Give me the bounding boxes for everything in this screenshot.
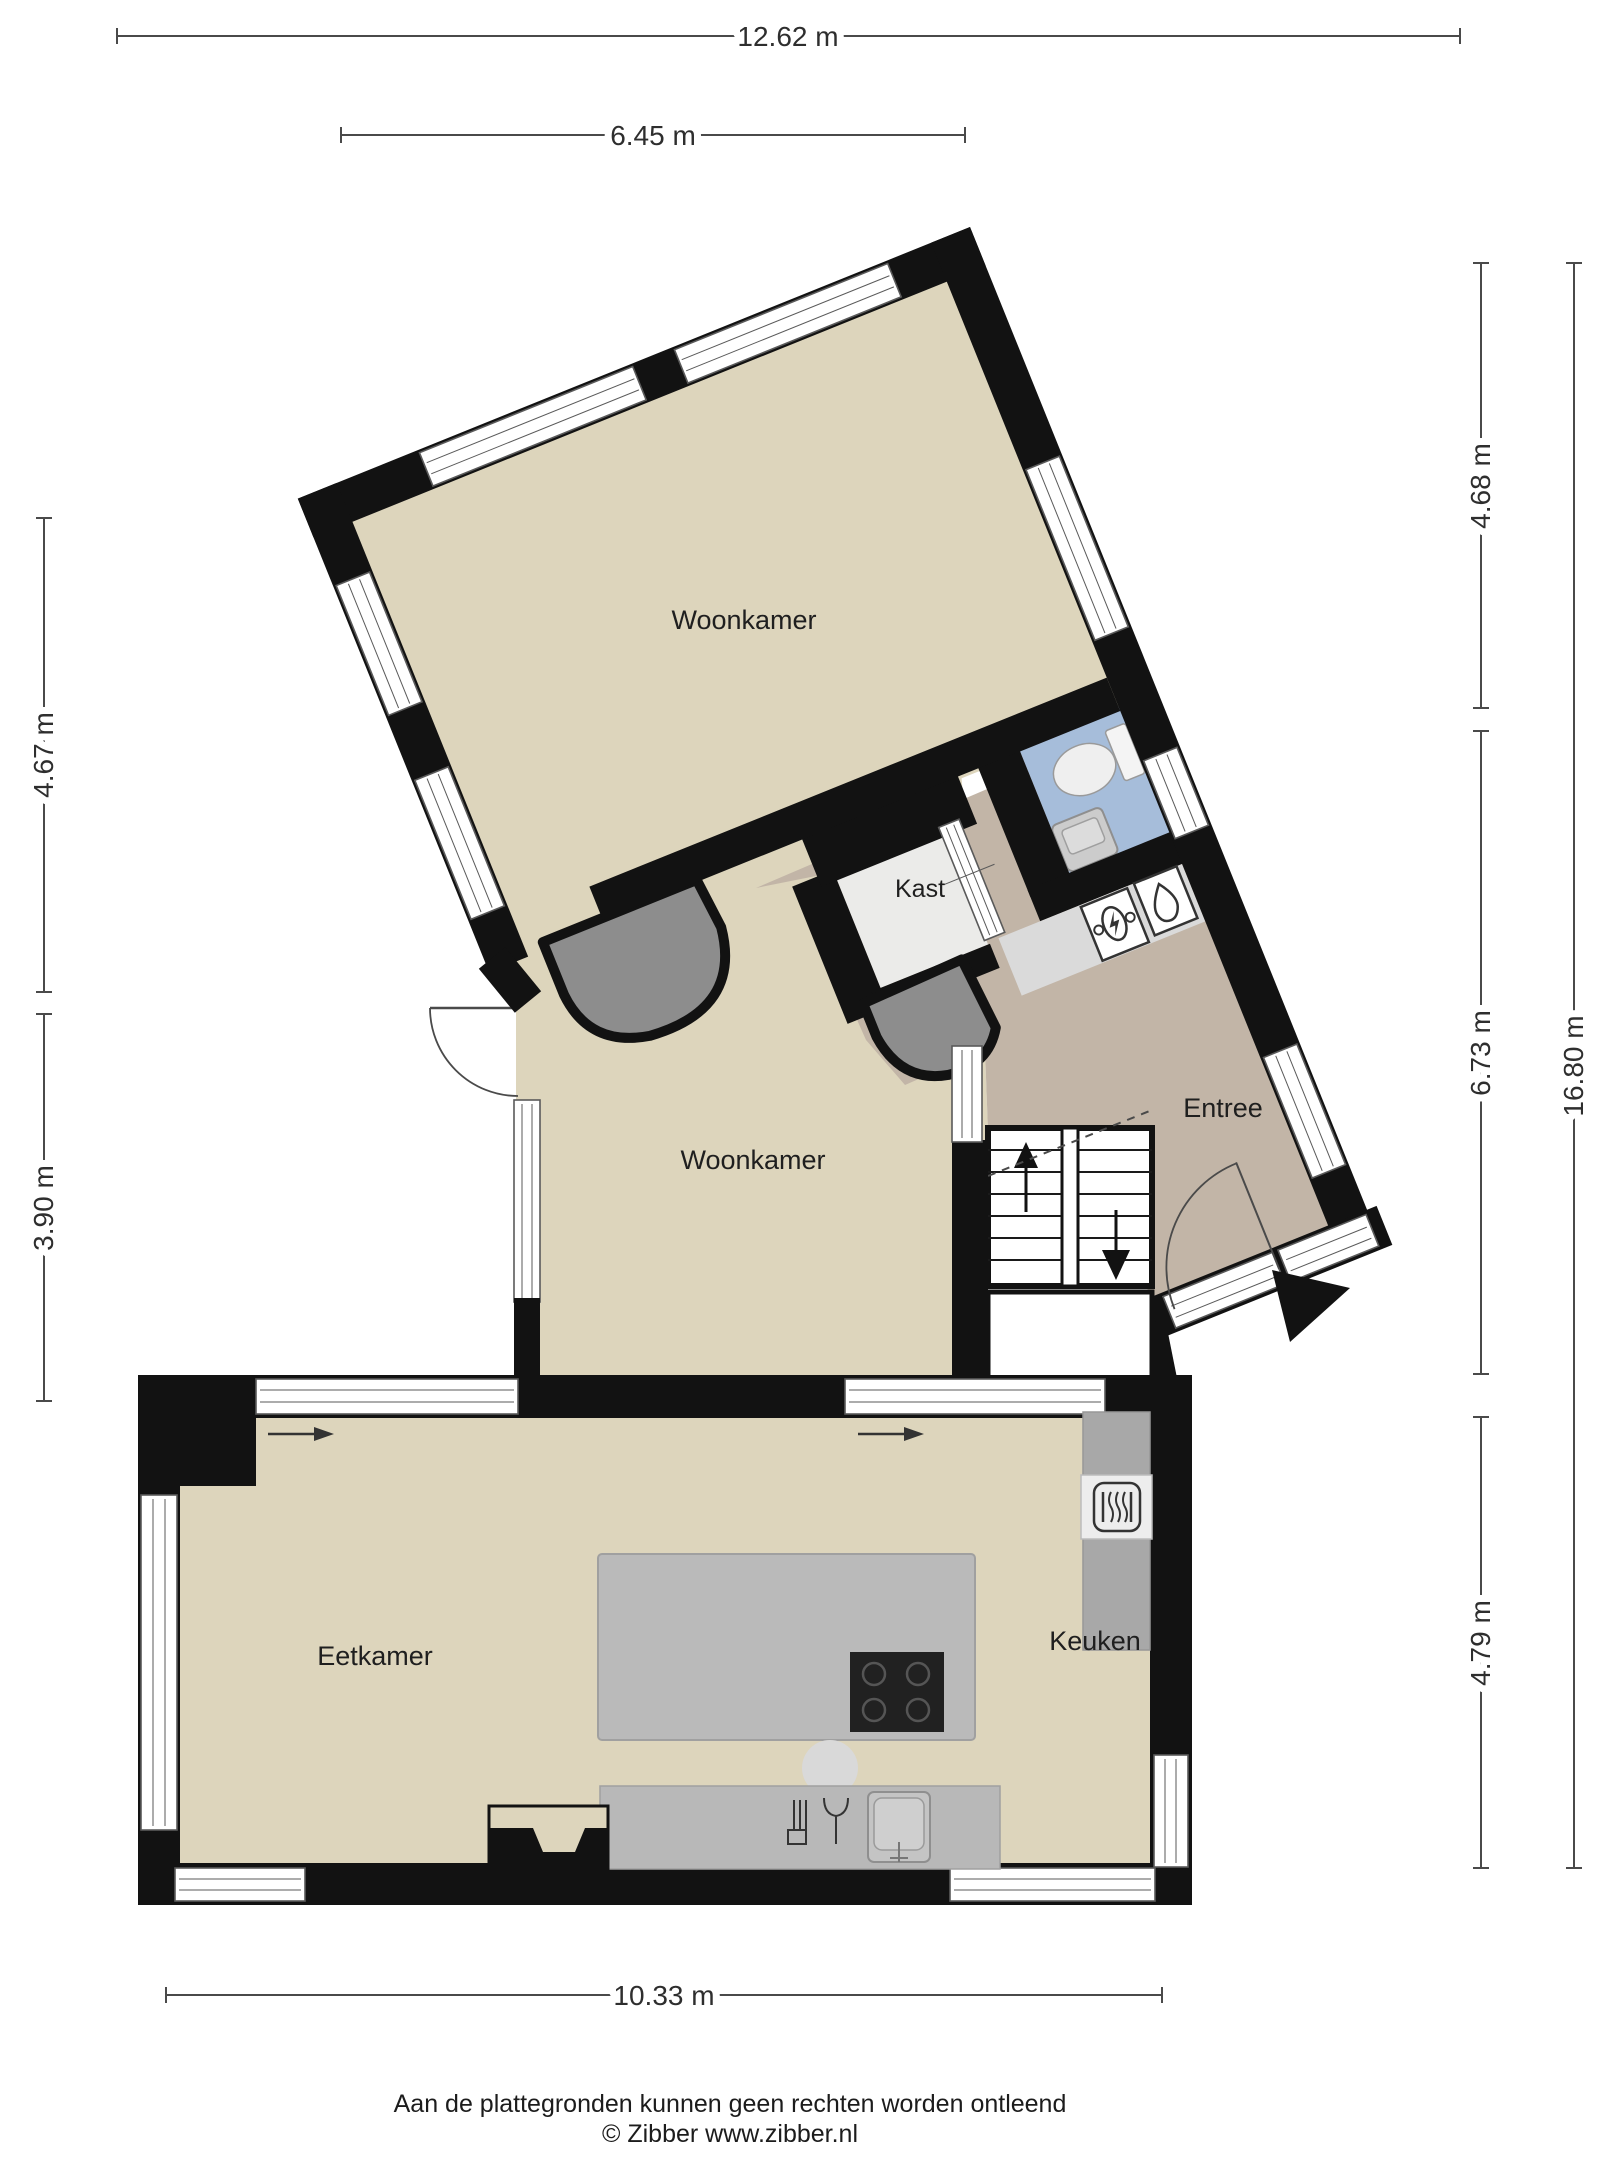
floorplan-canvas: 12.62 m 6.45 m 4.67 m 3.90 m 4.68 m 6.73… xyxy=(0,0,1620,2160)
label-woonkamer-midden: Woonkamer xyxy=(680,1145,825,1175)
fireplace xyxy=(489,1806,608,1869)
footer-copyright: © Zibber www.zibber.nl xyxy=(602,2120,858,2148)
stairs-void xyxy=(988,1292,1152,1388)
cooktop-icon xyxy=(850,1652,944,1732)
dim-right-total: 16.80 m xyxy=(1558,1015,1589,1116)
oven-icon xyxy=(1081,1475,1152,1539)
dim-left-lower: 3.90 m xyxy=(28,1165,59,1251)
window-lower-bottom-right xyxy=(950,1868,1155,1901)
wall-midden-west xyxy=(514,1298,540,1378)
kitchen-sink-icon xyxy=(868,1792,930,1862)
label-woonkamer-boven: Woonkamer xyxy=(671,605,816,635)
wall-stairs-left xyxy=(952,1140,988,1388)
dim-left-upper: 4.67 m xyxy=(28,712,59,798)
dim-right-lower: 4.79 m xyxy=(1465,1600,1496,1686)
window-midden-east xyxy=(952,1046,982,1142)
footer-disclaimer: Aan de plattegronden kunnen geen rechten… xyxy=(394,2090,1067,2118)
window-lower-left xyxy=(141,1495,177,1830)
label-keuken: Keuken xyxy=(1049,1626,1141,1656)
dim-right-middle: 6.73 m xyxy=(1465,1010,1496,1096)
dim-bottom: 10.33 m xyxy=(613,1980,714,2011)
window-lower-bottom-left xyxy=(175,1868,305,1901)
window-midden-west xyxy=(514,1100,540,1302)
dim-top-partial: 6.45 m xyxy=(610,120,696,151)
label-eetkamer: Eetkamer xyxy=(317,1641,433,1671)
floorplan-page: 12.62 m 6.45 m 4.67 m 3.90 m 4.68 m 6.73… xyxy=(0,0,1620,2160)
window-lower-right xyxy=(1154,1755,1188,1867)
staircase xyxy=(988,1110,1152,1388)
dim-top-full: 12.62 m xyxy=(737,21,838,52)
entrance-arrow xyxy=(1272,1270,1350,1342)
label-entree: Entree xyxy=(1183,1093,1263,1123)
label-kast: Kast xyxy=(895,875,945,903)
dim-right-upper: 4.68 m xyxy=(1465,443,1496,529)
west-door xyxy=(430,1008,518,1096)
